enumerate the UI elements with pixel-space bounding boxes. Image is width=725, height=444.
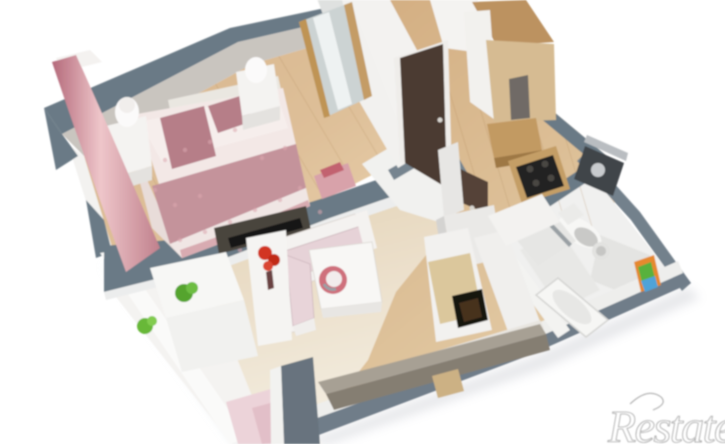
svg-text:Restate: Restate xyxy=(607,401,725,444)
